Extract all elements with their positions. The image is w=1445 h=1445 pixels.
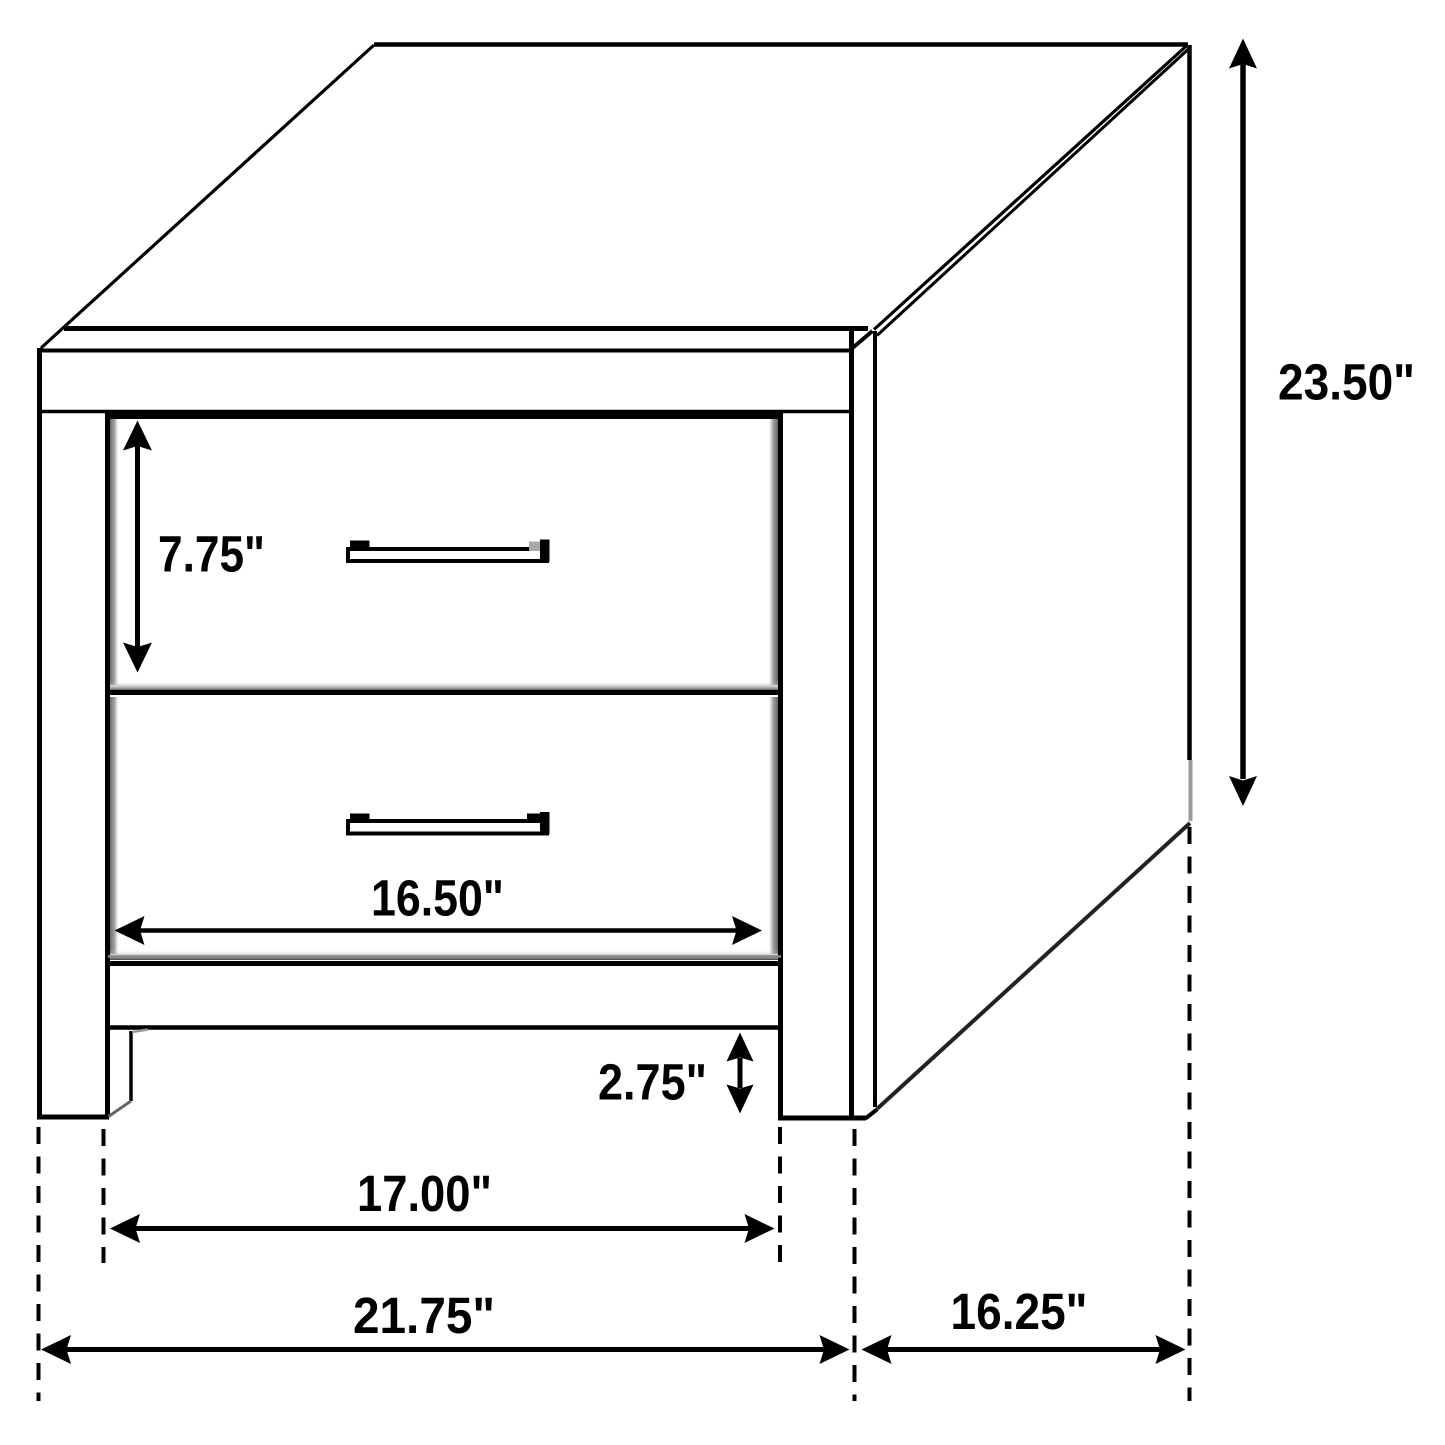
svg-text:23.50": 23.50" xyxy=(1278,354,1415,411)
svg-text:7.75": 7.75" xyxy=(158,526,265,583)
svg-text:17.00": 17.00" xyxy=(357,1165,492,1222)
svg-text:16.50": 16.50" xyxy=(371,870,504,927)
svg-text:16.25": 16.25" xyxy=(951,1283,1088,1340)
svg-text:21.75": 21.75" xyxy=(353,1287,495,1344)
svg-text:2.75": 2.75" xyxy=(598,1054,707,1111)
